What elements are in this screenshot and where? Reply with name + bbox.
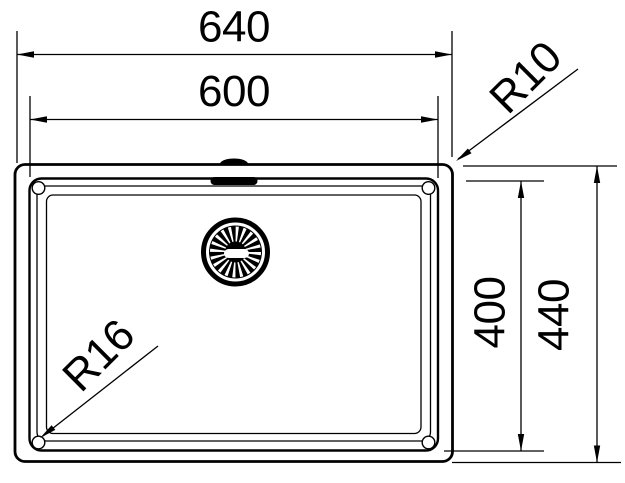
- drain-slot: [224, 249, 249, 258]
- bowl-corner-detail-bottom-right: [422, 436, 435, 449]
- drain-strainer: [204, 220, 268, 284]
- bowl-corner-detail-top-left: [32, 182, 45, 195]
- radius-callout-outer-corner: R10: [456, 32, 578, 161]
- arrowhead-bottom: [518, 434, 524, 451]
- arrowhead-left: [30, 116, 47, 122]
- radius-label-outer-corner: R10: [480, 32, 571, 123]
- dimension-label-outer-width: 640: [198, 2, 270, 51]
- dimension-label-bowl-width: 600: [198, 67, 270, 116]
- sink-outer-edge: [15, 165, 453, 462]
- bowl-wall-line-outer: [37, 186, 431, 441]
- overflow-notch: [220, 159, 248, 165]
- arrowhead-left: [17, 51, 34, 57]
- arrowhead-right: [421, 116, 438, 122]
- leader-arrowhead: [40, 425, 55, 438]
- radius-callout-bowl-corner: R16: [40, 310, 158, 438]
- bowl-corner-detail-bottom-left: [32, 436, 45, 449]
- overflow-slot: [211, 177, 258, 185]
- arrowhead-top: [518, 181, 524, 198]
- leader-arrowhead: [456, 149, 472, 162]
- dimension-label-bowl-depth: 400: [465, 277, 514, 349]
- arrowhead-right: [435, 51, 452, 57]
- sink-dimension-drawing: 640 600 400 440: [0, 0, 625, 483]
- radius-label-bowl-corner: R16: [53, 310, 144, 401]
- arrowhead-top: [594, 166, 600, 183]
- sink-outline: [15, 159, 453, 462]
- drawing-svg: 640 600 400 440: [0, 0, 625, 483]
- dimension-label-outer-depth: 440: [529, 279, 578, 351]
- bowl-corner-detail-top-right: [422, 182, 435, 195]
- arrowhead-bottom: [594, 446, 600, 463]
